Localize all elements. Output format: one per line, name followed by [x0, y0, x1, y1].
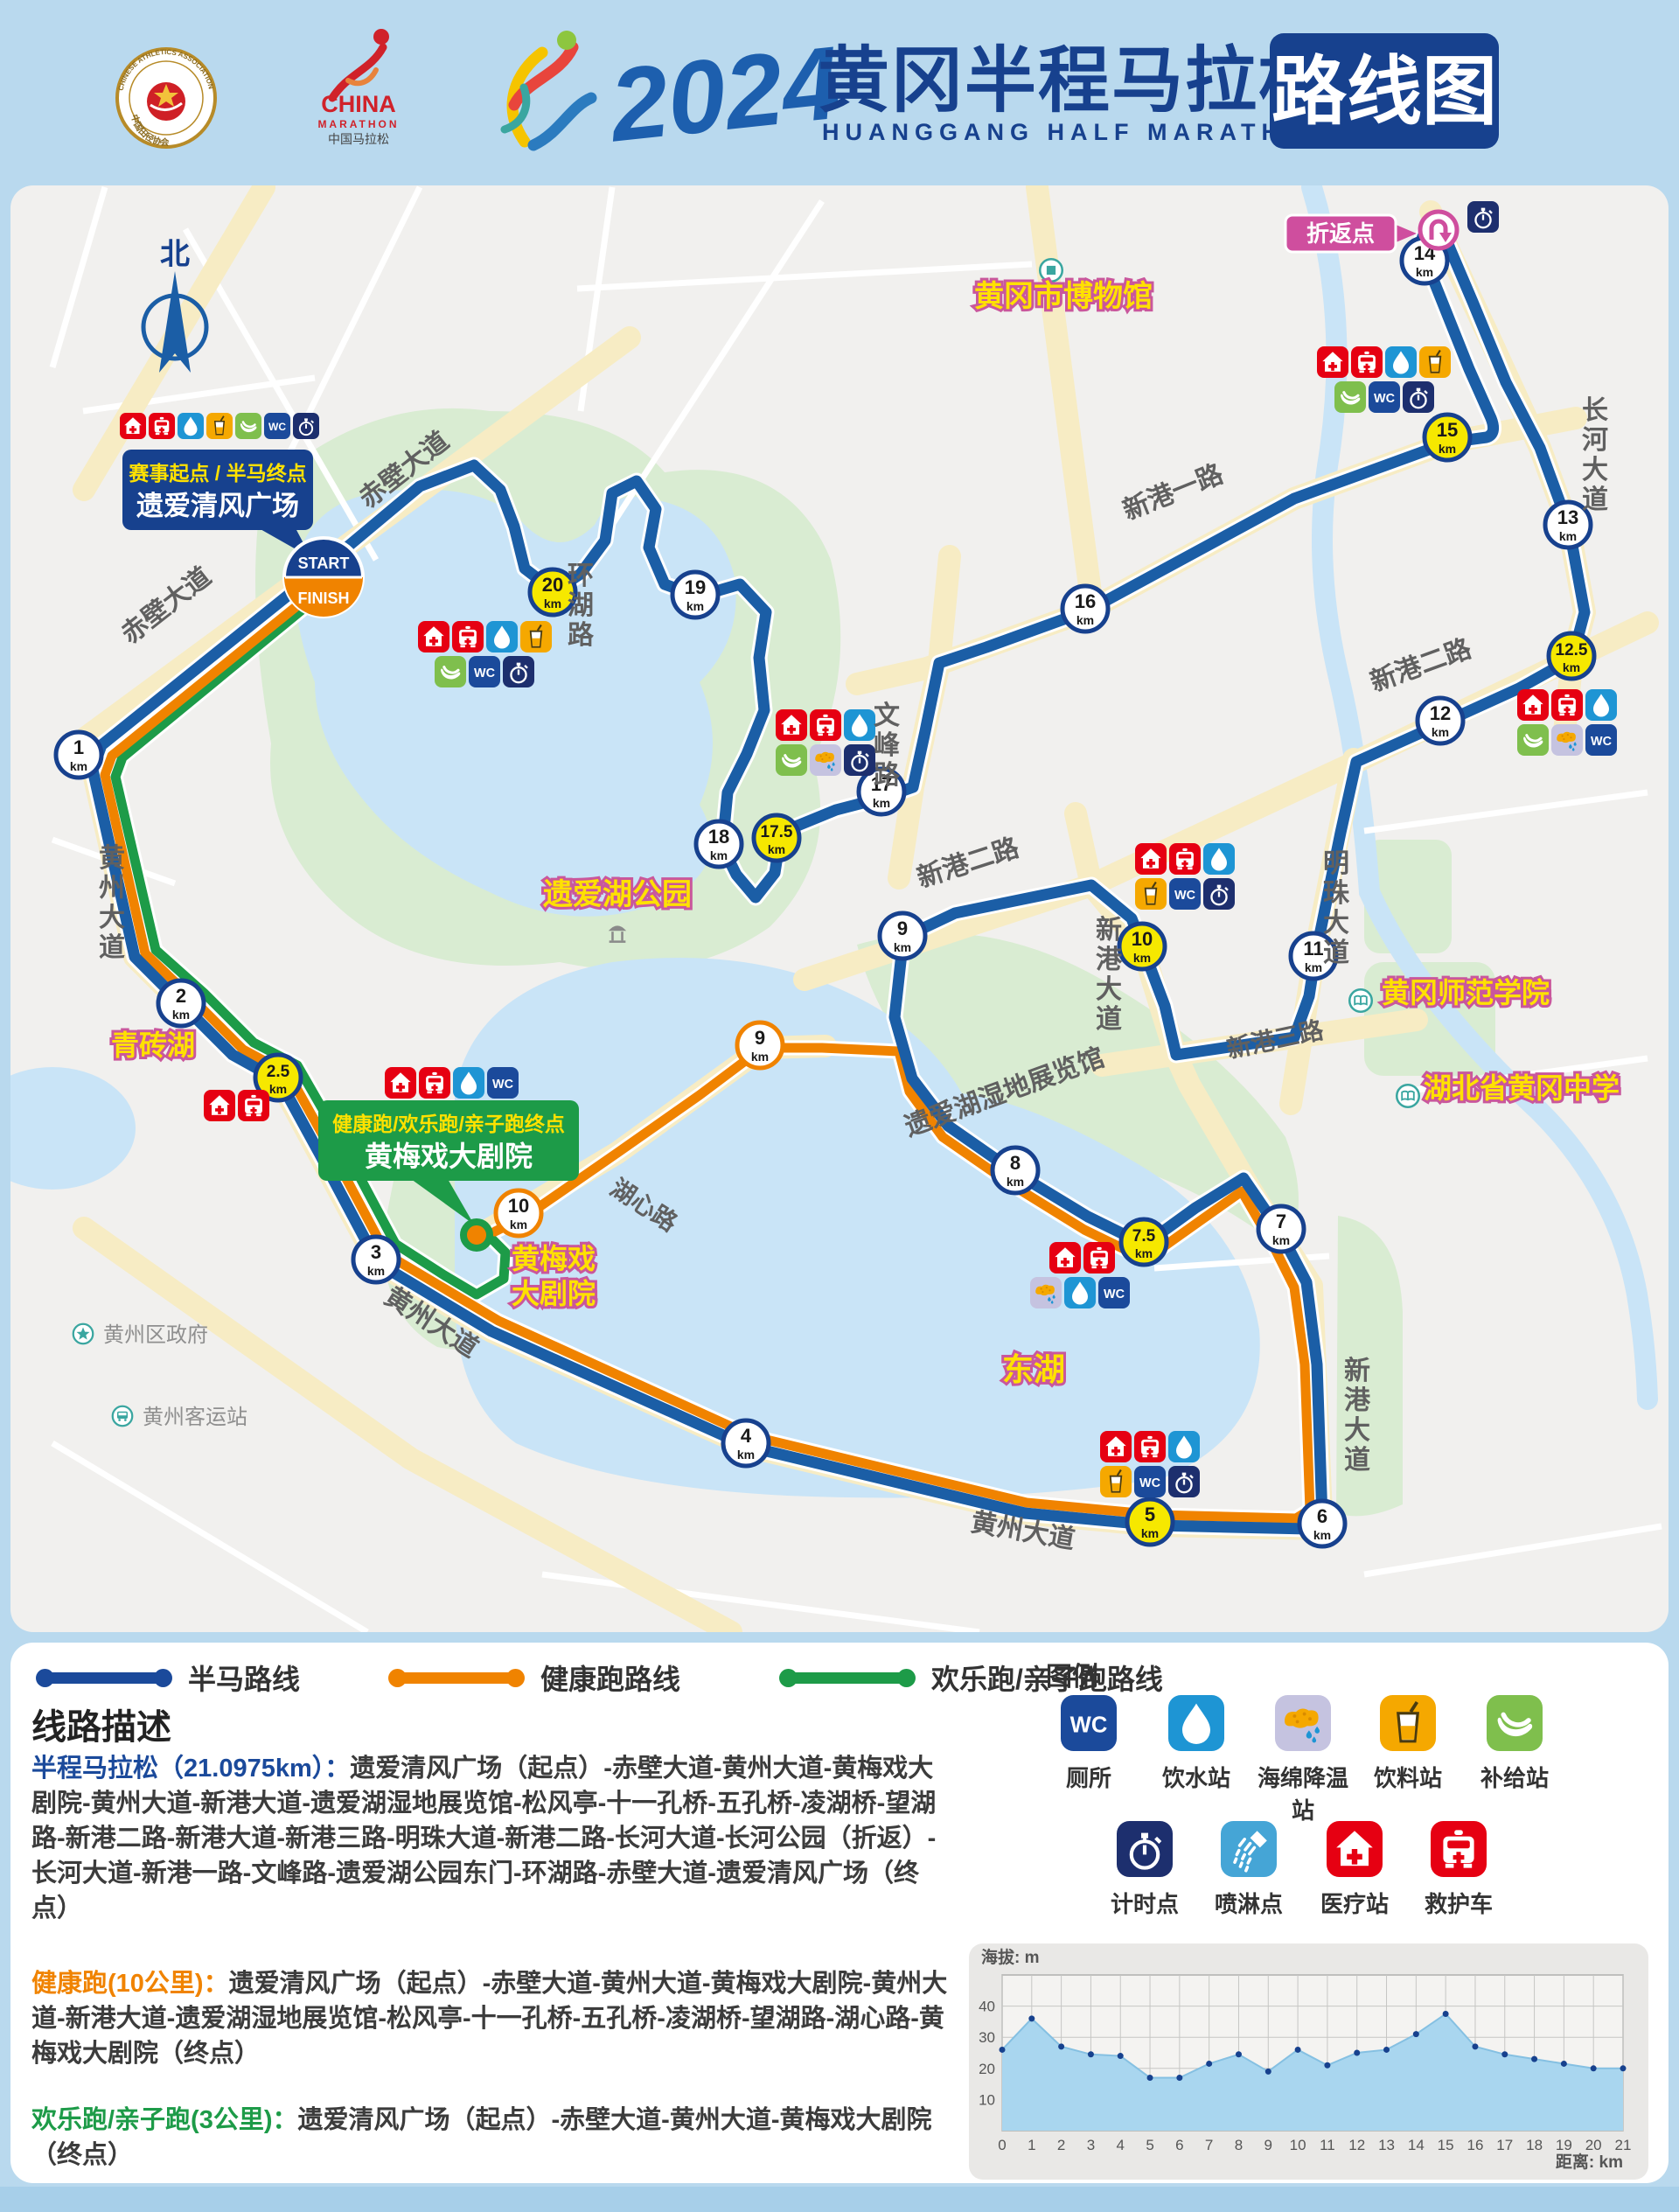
km-unit: km	[1272, 1233, 1290, 1247]
facility-cluster	[385, 1067, 519, 1099]
poi-label: 黄州客运站	[143, 1406, 247, 1429]
water-icon	[178, 413, 204, 439]
medical-icon	[204, 1090, 235, 1121]
km-number: 5	[1145, 1504, 1155, 1525]
chart-point	[1531, 2056, 1537, 2062]
drink-icon	[1100, 1466, 1132, 1497]
km-unit: km	[1141, 1526, 1159, 1540]
chart-point	[1591, 2065, 1597, 2071]
km-unit: km	[1313, 1528, 1331, 1542]
chart-y-tick: 40	[979, 1999, 995, 2015]
medical-icon	[1317, 346, 1348, 378]
road-label: 环湖路	[568, 562, 595, 650]
year-logo: 2024	[603, 25, 846, 164]
km-marker: 9km	[737, 1022, 783, 1068]
school-icon	[1349, 989, 1372, 1012]
u-turn-icon	[1420, 212, 1457, 248]
km-marker: 4km	[723, 1420, 769, 1466]
poi-labels: 黄州区政府黄州客运站	[73, 1323, 247, 1429]
medical-icon	[776, 709, 807, 741]
banana-icon	[1517, 724, 1549, 756]
chart-x-tick: 4	[1117, 2137, 1125, 2153]
poster: CHINESE ATHLETICS ASSOCIATION 中国田径协会 CHI…	[0, 0, 1679, 2212]
wc-icon	[264, 413, 290, 439]
banana-icon	[1487, 1695, 1543, 1751]
water-icon	[844, 709, 875, 741]
road-label: 长河大道	[1582, 396, 1608, 514]
chart-point	[1265, 2069, 1271, 2075]
km-number: 20	[542, 574, 563, 596]
km-unit: km	[544, 597, 561, 611]
timer-icon	[1203, 878, 1235, 910]
chart-x-tick: 13	[1378, 2137, 1395, 2153]
chart-point	[1354, 2050, 1360, 2056]
banana-icon	[776, 744, 807, 776]
timer-icon	[844, 744, 875, 776]
water-icon	[1168, 1431, 1200, 1462]
start-label-box: 赛事起点 / 半马终点 遗爱清风广场	[122, 450, 313, 558]
ambulance-icon	[1431, 1821, 1487, 1877]
ambulance-icon	[149, 413, 175, 439]
km-number: 18	[708, 826, 729, 848]
header: CHINESE ATHLETICS ASSOCIATION 中国田径协会 CHI…	[0, 0, 1679, 185]
chart-point	[1088, 2051, 1094, 2057]
ambulance-icon	[1169, 843, 1201, 875]
km-marker: 7km	[1258, 1206, 1304, 1252]
chart-x-tick: 1	[1028, 2137, 1035, 2153]
water-icon	[1064, 1277, 1096, 1308]
star-icon	[73, 1324, 94, 1344]
chart-x-tick: 7	[1205, 2137, 1213, 2153]
facility-legend-item: 饮料站	[1355, 1695, 1460, 1793]
medical-icon	[418, 621, 449, 652]
km-marker: 12.5km	[1549, 633, 1594, 679]
road-label: 文峰路	[874, 701, 901, 790]
route-description: 欢乐跑/亲子跑(3公里)：遗爱清风广场（起点）-赤壁大道-黄州大道-黄梅戏大剧院…	[31, 2103, 957, 2173]
title-cn: 黄冈半程马拉松	[818, 41, 1332, 121]
banana-icon	[235, 413, 261, 439]
start-text: START	[298, 555, 350, 572]
water-icon	[453, 1067, 484, 1099]
km-number: 15	[1437, 419, 1458, 441]
wc-icon	[1061, 1695, 1117, 1751]
sponge-icon	[1551, 724, 1583, 756]
sponge-icon	[1275, 1695, 1331, 1751]
km-number: 7.5	[1132, 1227, 1156, 1246]
landmark-label: 黄冈市博物馆	[974, 279, 1153, 313]
route-legend-item: 半马路线	[39, 1660, 300, 1695]
chart-point	[1058, 2043, 1064, 2049]
km-unit: km	[1563, 660, 1580, 674]
finish-text: FINISH	[297, 590, 349, 607]
facility-cluster	[1135, 843, 1235, 910]
route-legend-item: 健康跑路线	[392, 1660, 680, 1695]
buspoi-icon	[113, 1406, 133, 1427]
km-number: 10	[508, 1195, 529, 1217]
event-runner-logo	[505, 31, 591, 145]
chart-point	[1501, 2051, 1508, 2057]
description-lead: 健康跑(10公里)：	[31, 1970, 229, 1998]
banana-icon	[435, 656, 466, 687]
chart-ylabel: 海拔: m	[981, 1947, 1040, 1967]
chart-x-tick: 6	[1175, 2137, 1183, 2153]
km-unit: km	[1305, 960, 1322, 974]
facility-legend-item: 计时点	[1092, 1821, 1197, 1919]
chart-x-tick: 5	[1146, 2137, 1153, 2153]
km-unit: km	[1007, 1175, 1024, 1189]
medical-icon	[1100, 1431, 1132, 1462]
timer-icon	[1467, 201, 1499, 233]
km-unit: km	[737, 1448, 755, 1462]
description-lead: 半程马拉松（21.0975km）：	[31, 1755, 350, 1783]
km-number: 9	[897, 918, 908, 939]
facility-legend-label: 厕所	[1036, 1761, 1141, 1793]
landmark-label: 东湖	[1002, 1351, 1065, 1387]
route-legend-label: 欢乐跑/亲子跑路线	[931, 1657, 1163, 1698]
km-unit: km	[873, 796, 890, 810]
route-map-badge: 路线图	[1270, 33, 1499, 149]
water-icon	[1203, 843, 1235, 875]
km-unit: km	[269, 1082, 287, 1096]
km-marker: 7.5km	[1121, 1219, 1167, 1265]
wc-icon	[487, 1067, 519, 1099]
km-unit: km	[894, 940, 911, 954]
facility-legend-label: 饮水站	[1144, 1761, 1249, 1793]
water-icon	[1585, 689, 1617, 721]
sponge-icon	[1275, 1695, 1331, 1751]
chart-x-tick: 14	[1408, 2137, 1425, 2153]
landmark-label: 黄梅戏	[512, 1243, 596, 1274]
cm-china: CHINA	[321, 91, 396, 117]
title-en: HUANGGANG HALF MARATHON	[822, 119, 1332, 145]
chart-x-tick: 18	[1526, 2137, 1543, 2153]
wc-icon	[1369, 381, 1400, 413]
km-number: 16	[1075, 590, 1096, 612]
timer-icon	[1168, 1466, 1200, 1497]
chart-point	[1561, 2061, 1567, 2067]
chart-point	[1383, 2047, 1390, 2053]
km-marker: 8km	[993, 1148, 1038, 1193]
route-description: 健康跑(10公里)：遗爱清风广场（起点）-赤壁大道-黄州大道-黄梅戏大剧院-黄州…	[31, 1966, 957, 2071]
route-legend-line	[783, 1672, 912, 1684]
facility-legend-label: 海绵降温站	[1251, 1761, 1355, 1825]
athletics-association-logo: CHINESE ATHLETICS ASSOCIATION 中国田径协会	[117, 48, 215, 148]
facility-legend-label: 救护车	[1406, 1887, 1511, 1919]
km-unit: km	[367, 1264, 385, 1278]
chart-x-tick: 3	[1087, 2137, 1095, 2153]
chart-x-tick: 11	[1320, 2137, 1335, 2153]
road-label: 赤壁大道	[116, 562, 217, 650]
km-unit: km	[710, 848, 728, 862]
drink-icon	[206, 413, 233, 439]
map-panel: WC	[10, 185, 1669, 1632]
timer-icon	[1403, 381, 1434, 413]
chart-x-tick: 17	[1496, 2137, 1513, 2153]
chart-x-tick: 10	[1290, 2137, 1306, 2153]
road-label: 新港大道	[1344, 1357, 1371, 1475]
km-marker: 3km	[353, 1237, 399, 1282]
museum-icon	[1040, 259, 1062, 282]
chart-point	[1176, 2075, 1182, 2081]
km-marker: 2km	[158, 980, 204, 1026]
km-marker: 9km	[880, 913, 925, 959]
chart-x-tick: 8	[1235, 2137, 1243, 2153]
water-icon	[1385, 346, 1417, 378]
turnaround-label: 折返点	[1306, 220, 1375, 247]
facility-cluster	[1467, 201, 1499, 233]
chart-x-tick: 0	[998, 2137, 1006, 2153]
km-number: 17.5	[761, 823, 793, 841]
turnaround: 折返点	[1285, 212, 1457, 252]
drink-icon	[520, 621, 552, 652]
km-unit: km	[1416, 265, 1433, 279]
chart-x-tick: 15	[1438, 2137, 1454, 2153]
km-number: 2.5	[267, 1063, 290, 1081]
ambulance-icon	[1134, 1431, 1166, 1462]
facility-legend-item: 救护车	[1406, 1821, 1511, 1919]
chart-point	[1413, 2031, 1419, 2037]
facility-legend-item: 医疗站	[1302, 1821, 1407, 1919]
km-number: 1	[73, 736, 84, 758]
chart-point	[1324, 2062, 1330, 2069]
medical-icon	[1049, 1242, 1081, 1273]
road-label: 明珠大道	[1323, 849, 1350, 967]
km-unit: km	[1133, 951, 1151, 965]
drink-icon	[1419, 346, 1451, 378]
chart-x-tick: 20	[1585, 2137, 1602, 2153]
start-finish-badge: START FINISH	[284, 538, 363, 617]
wc-icon	[469, 656, 500, 687]
route-legend-item: 欢乐跑/亲子跑路线	[783, 1660, 1163, 1695]
km-unit: km	[768, 842, 785, 856]
timer-icon	[1117, 1821, 1173, 1877]
route-legend-label: 健康跑路线	[540, 1657, 680, 1698]
medical-icon	[1517, 689, 1549, 721]
medical-icon	[1327, 1821, 1383, 1877]
km-unit: km	[1076, 613, 1094, 627]
km-marker: 19km	[672, 572, 718, 618]
water-icon	[486, 621, 518, 652]
chart-point	[1443, 2011, 1449, 2017]
chart-point	[1236, 2051, 1242, 2057]
route-legend-label: 半马路线	[188, 1657, 300, 1698]
chart-xlabel: 距离: km	[1556, 2152, 1623, 2172]
chart-y-tick: 10	[979, 2091, 995, 2108]
facility-legend-item: 饮水站	[1144, 1695, 1249, 1793]
chart-point	[1147, 2075, 1153, 2081]
km-number: 11	[1303, 938, 1323, 959]
landmark-label: 黄冈师范学院	[1382, 977, 1550, 1008]
facility-legend-item: 厕所	[1036, 1695, 1141, 1793]
km-number: 8	[1010, 1152, 1021, 1174]
road-label: 新港一路	[1119, 459, 1229, 526]
chart-point	[1620, 2065, 1627, 2071]
chart-x-tick: 16	[1467, 2137, 1483, 2153]
facility-legend-item: 补给站	[1462, 1695, 1567, 1793]
timer-icon	[1117, 1821, 1173, 1877]
sponge-icon	[1030, 1277, 1062, 1308]
facility-cluster	[120, 413, 319, 439]
landmark-label: 青砖湖	[111, 1029, 195, 1061]
km-marker: 10km	[496, 1190, 541, 1236]
km-unit: km	[172, 1008, 190, 1022]
km-marker: 16km	[1062, 586, 1108, 632]
km-marker: 1km	[56, 732, 101, 778]
medical-icon	[120, 413, 146, 439]
ambulance-icon	[419, 1067, 450, 1099]
km-number: 4	[741, 1425, 752, 1447]
water-icon	[1168, 1695, 1224, 1751]
facility-legend-label: 喷淋点	[1196, 1887, 1301, 1919]
chart-point	[1295, 2047, 1301, 2053]
chart-x-tick: 9	[1264, 2137, 1272, 2153]
timer-icon	[293, 413, 319, 439]
poi-label: 黄州区政府	[103, 1323, 208, 1347]
school-icon	[1397, 1085, 1419, 1107]
road-label: 新港二路	[1367, 634, 1476, 697]
km-unit: km	[70, 759, 87, 773]
wc-icon	[1169, 878, 1201, 910]
theater-finish-dot	[463, 1222, 490, 1248]
km-unit: km	[686, 599, 704, 613]
chart-x-tick: 21	[1615, 2137, 1632, 2153]
wc-icon	[1098, 1277, 1130, 1308]
medical-icon	[1135, 843, 1167, 875]
chart-point	[1472, 2043, 1478, 2049]
chart-x-tick: 12	[1348, 2137, 1365, 2153]
ambulance-icon	[1431, 1821, 1487, 1877]
start-label-line2: 遗爱清风广场	[136, 491, 299, 521]
km-number: 12	[1430, 702, 1451, 724]
km-number: 12.5	[1556, 641, 1588, 659]
china-marathon-logo: CHINA MARATHON 中国马拉松	[317, 29, 399, 146]
finish-label-line1: 健康跑/欢乐跑/亲子跑终点	[332, 1113, 565, 1135]
road-label: 新港二路	[914, 833, 1023, 893]
km-marker: 15km	[1425, 415, 1470, 460]
ambulance-icon	[810, 709, 841, 741]
km-unit: km	[1439, 442, 1456, 456]
description-heading: 线路描述	[31, 1699, 171, 1749]
finish-label-line2: 黄梅戏大剧院	[365, 1141, 533, 1172]
km-number: 3	[371, 1241, 381, 1263]
medical-icon	[1327, 1821, 1383, 1877]
compass-north-label: 北	[160, 238, 190, 271]
chart-x-tick: 19	[1556, 2137, 1572, 2153]
ambulance-icon	[1083, 1242, 1115, 1273]
spray-icon	[1221, 1821, 1277, 1877]
km-number: 10	[1132, 928, 1153, 950]
chart-y-tick: 20	[979, 2061, 995, 2077]
route-legend-line	[39, 1672, 169, 1684]
compass: 北	[143, 238, 206, 373]
km-unit: km	[1135, 1246, 1153, 1260]
route-description: 半程马拉松（21.0975km）：遗爱清风广场（起点）-赤壁大道-黄州大道-黄梅…	[31, 1751, 957, 1926]
km-number: 6	[1317, 1505, 1327, 1527]
drink-icon	[1380, 1695, 1436, 1751]
drink-icon	[1380, 1695, 1436, 1751]
km-marker: 18km	[696, 821, 742, 867]
chart-point	[1118, 2053, 1124, 2059]
km-number: 2	[176, 985, 186, 1007]
chart-y-tick: 30	[979, 2029, 995, 2046]
sponge-icon	[810, 744, 841, 776]
landmark-label: 大剧院	[512, 1278, 596, 1309]
svg-text:路线图: 路线图	[1271, 50, 1497, 134]
medical-icon	[385, 1067, 416, 1099]
facility-legend-label: 补给站	[1462, 1761, 1567, 1793]
km-marker: 6km	[1299, 1501, 1345, 1546]
start-label-line1: 赛事起点 / 半马终点	[128, 462, 306, 485]
chart-point	[1206, 2061, 1212, 2067]
cm-cn: 中国马拉松	[328, 132, 389, 146]
chart-point	[1028, 2015, 1035, 2021]
water-icon	[1168, 1695, 1224, 1751]
facility-legend-label: 饮料站	[1355, 1761, 1460, 1793]
road-label: 新港三路	[1224, 1016, 1327, 1064]
km-unit: km	[1432, 725, 1449, 739]
wc-icon	[1061, 1695, 1117, 1751]
road-label: 新港大道	[1096, 916, 1123, 1034]
elevation-chart-panel: 0123456789101112131415161718192021102030…	[969, 1943, 1648, 2180]
chart-point	[1000, 2047, 1006, 2053]
facility-legend-item: 喷淋点	[1196, 1821, 1301, 1919]
wc-icon	[1585, 724, 1617, 756]
facility-legend-item: 海绵降温站	[1251, 1695, 1355, 1825]
km-marker: 17.5km	[754, 815, 799, 861]
km-marker: 12km	[1418, 698, 1463, 743]
facility-legend-label: 医疗站	[1302, 1887, 1407, 1919]
timer-icon	[503, 656, 534, 687]
banana-icon	[1487, 1695, 1543, 1751]
ambulance-icon	[452, 621, 484, 652]
km-marker: 10km	[1119, 924, 1165, 969]
road-label: 黄州大道	[99, 844, 125, 962]
footer-band	[0, 2187, 1679, 2212]
facility-cluster	[204, 1090, 269, 1121]
description-lead: 欢乐跑/亲子跑(3公里)：	[31, 2106, 298, 2134]
km-number: 19	[685, 576, 706, 598]
route-legend-line	[392, 1672, 521, 1684]
chart-x-tick: 2	[1057, 2137, 1065, 2153]
drink-icon	[1135, 878, 1167, 910]
ambulance-icon	[1551, 689, 1583, 721]
spray-icon	[1221, 1821, 1277, 1877]
landmark-label: 湖北省黄冈中学	[1424, 1072, 1620, 1104]
km-unit: km	[1559, 529, 1577, 543]
km-number: 7	[1276, 1211, 1286, 1232]
landmark-label: 遗爱湖公园	[543, 878, 692, 911]
ambulance-icon	[1351, 346, 1383, 378]
km-unit: km	[751, 1050, 769, 1064]
km-number: 9	[755, 1027, 765, 1049]
ambulance-icon	[238, 1090, 269, 1121]
facility-legend-label: 计时点	[1092, 1887, 1197, 1919]
cm-marathon: MARATHON	[317, 118, 399, 130]
km-marker: 5km	[1127, 1499, 1173, 1545]
km-unit: km	[510, 1218, 527, 1232]
wc-icon	[1134, 1466, 1166, 1497]
banana-icon	[1334, 381, 1366, 413]
km-number: 13	[1557, 506, 1578, 528]
